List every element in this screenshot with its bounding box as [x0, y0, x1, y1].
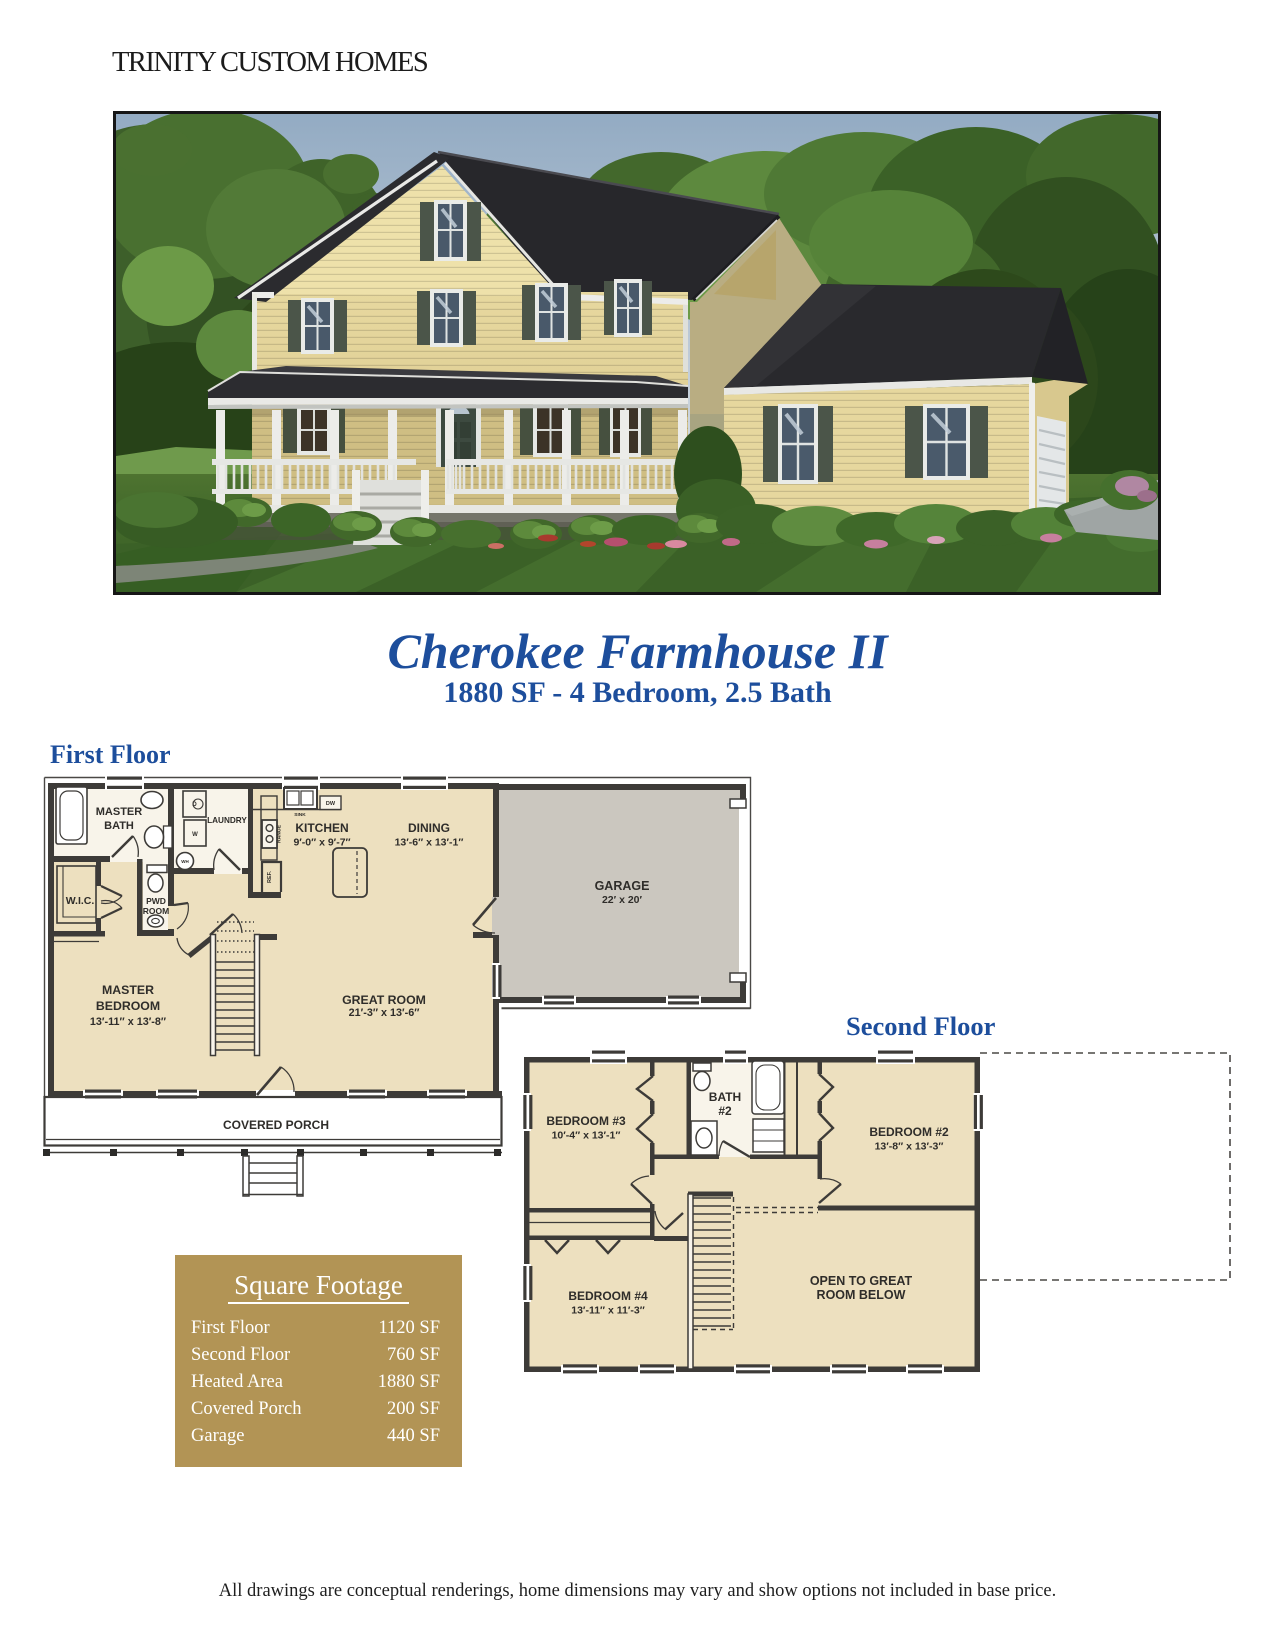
svg-text:BATH: BATH — [104, 820, 134, 832]
svg-text:RANGE: RANGE — [277, 824, 283, 843]
svg-text:9′-0″ x 9′-7″: 9′-0″ x 9′-7″ — [293, 837, 350, 849]
svg-text:BEDROOM: BEDROOM — [96, 999, 160, 1013]
svg-text:21′-3″ x 13′-6″: 21′-3″ x 13′-6″ — [349, 1007, 420, 1019]
svg-text:ROOM: ROOM — [143, 906, 169, 916]
svg-text:KITCHEN: KITCHEN — [295, 821, 348, 835]
svg-text:13′-11″ x 13′-8″: 13′-11″ x 13′-8″ — [90, 1016, 166, 1028]
svg-text:BEDROOM #3: BEDROOM #3 — [546, 1114, 626, 1128]
svg-text:13′-11″ x 11′-3″: 13′-11″ x 11′-3″ — [571, 1305, 644, 1317]
svg-text:GREAT ROOM: GREAT ROOM — [342, 993, 426, 1007]
svg-text:BEDROOM #4: BEDROOM #4 — [568, 1289, 648, 1303]
svg-text:D: D — [192, 802, 197, 808]
svg-text:W.I.C.: W.I.C. — [66, 895, 95, 907]
svg-text:MASTER: MASTER — [102, 983, 154, 997]
svg-text:GARAGE: GARAGE — [595, 879, 650, 893]
svg-text:22′ x 20′: 22′ x 20′ — [602, 894, 643, 906]
svg-text:LAUNDRY: LAUNDRY — [207, 816, 247, 825]
svg-text:OPEN TO GREAT: OPEN TO GREAT — [810, 1274, 913, 1288]
svg-text:13′-8″ x 13′-3″: 13′-8″ x 13′-3″ — [875, 1141, 944, 1153]
svg-text:DINING: DINING — [408, 821, 450, 835]
svg-text:REF.: REF. — [267, 871, 273, 883]
svg-text:BATH: BATH — [709, 1090, 741, 1104]
svg-text:#2: #2 — [718, 1104, 732, 1118]
svg-text:PWD: PWD — [146, 896, 166, 906]
svg-text:MASTER: MASTER — [96, 806, 143, 818]
svg-text:SINK: SINK — [294, 812, 306, 818]
svg-text:WH: WH — [181, 859, 189, 864]
svg-text:13′-6″ x 13′-1″: 13′-6″ x 13′-1″ — [395, 837, 464, 849]
svg-text:DW: DW — [326, 801, 336, 807]
svg-text:COVERED PORCH: COVERED PORCH — [223, 1118, 329, 1132]
svg-text:10′-4″ x 13′-1″: 10′-4″ x 13′-1″ — [552, 1130, 621, 1142]
svg-text:W: W — [192, 832, 198, 838]
svg-text:ROOM BELOW: ROOM BELOW — [817, 1288, 906, 1302]
svg-text:BEDROOM #2: BEDROOM #2 — [869, 1125, 949, 1139]
